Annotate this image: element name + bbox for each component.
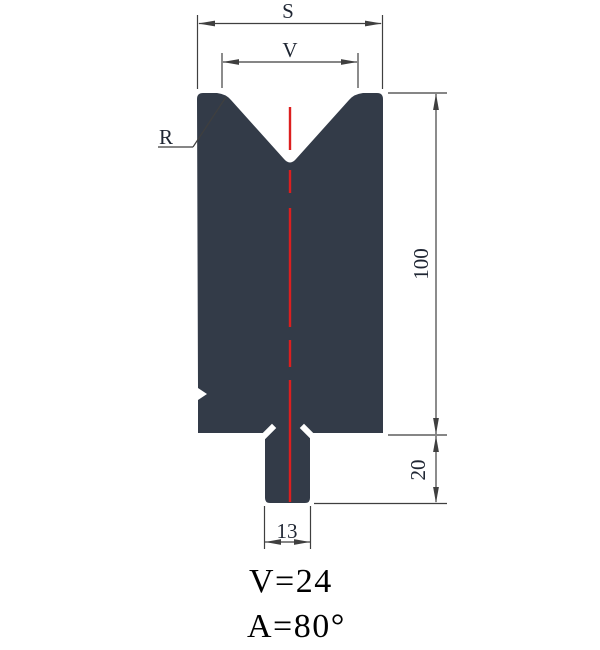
die-drawing: S V R 100 20 13 V=24 A=80° bbox=[0, 0, 600, 650]
arrow bbox=[341, 59, 358, 65]
drawing-canvas: S V R 100 20 13 V=24 A=80° bbox=[0, 0, 600, 650]
arrow bbox=[433, 94, 439, 111]
label-v: V bbox=[282, 38, 297, 62]
arrow bbox=[198, 21, 215, 27]
caption-angle-value: A=80° bbox=[247, 608, 346, 645]
caption-v-value: V=24 bbox=[249, 563, 333, 600]
label-r: R bbox=[159, 125, 173, 149]
arrow bbox=[365, 21, 382, 27]
arrow bbox=[433, 418, 439, 435]
label-100: 100 bbox=[409, 248, 433, 280]
label-s: S bbox=[282, 0, 294, 23]
arrow bbox=[433, 487, 439, 503]
arrow bbox=[433, 436, 439, 452]
label-20: 20 bbox=[406, 460, 430, 481]
label-13: 13 bbox=[277, 519, 298, 543]
arrow bbox=[223, 59, 240, 65]
